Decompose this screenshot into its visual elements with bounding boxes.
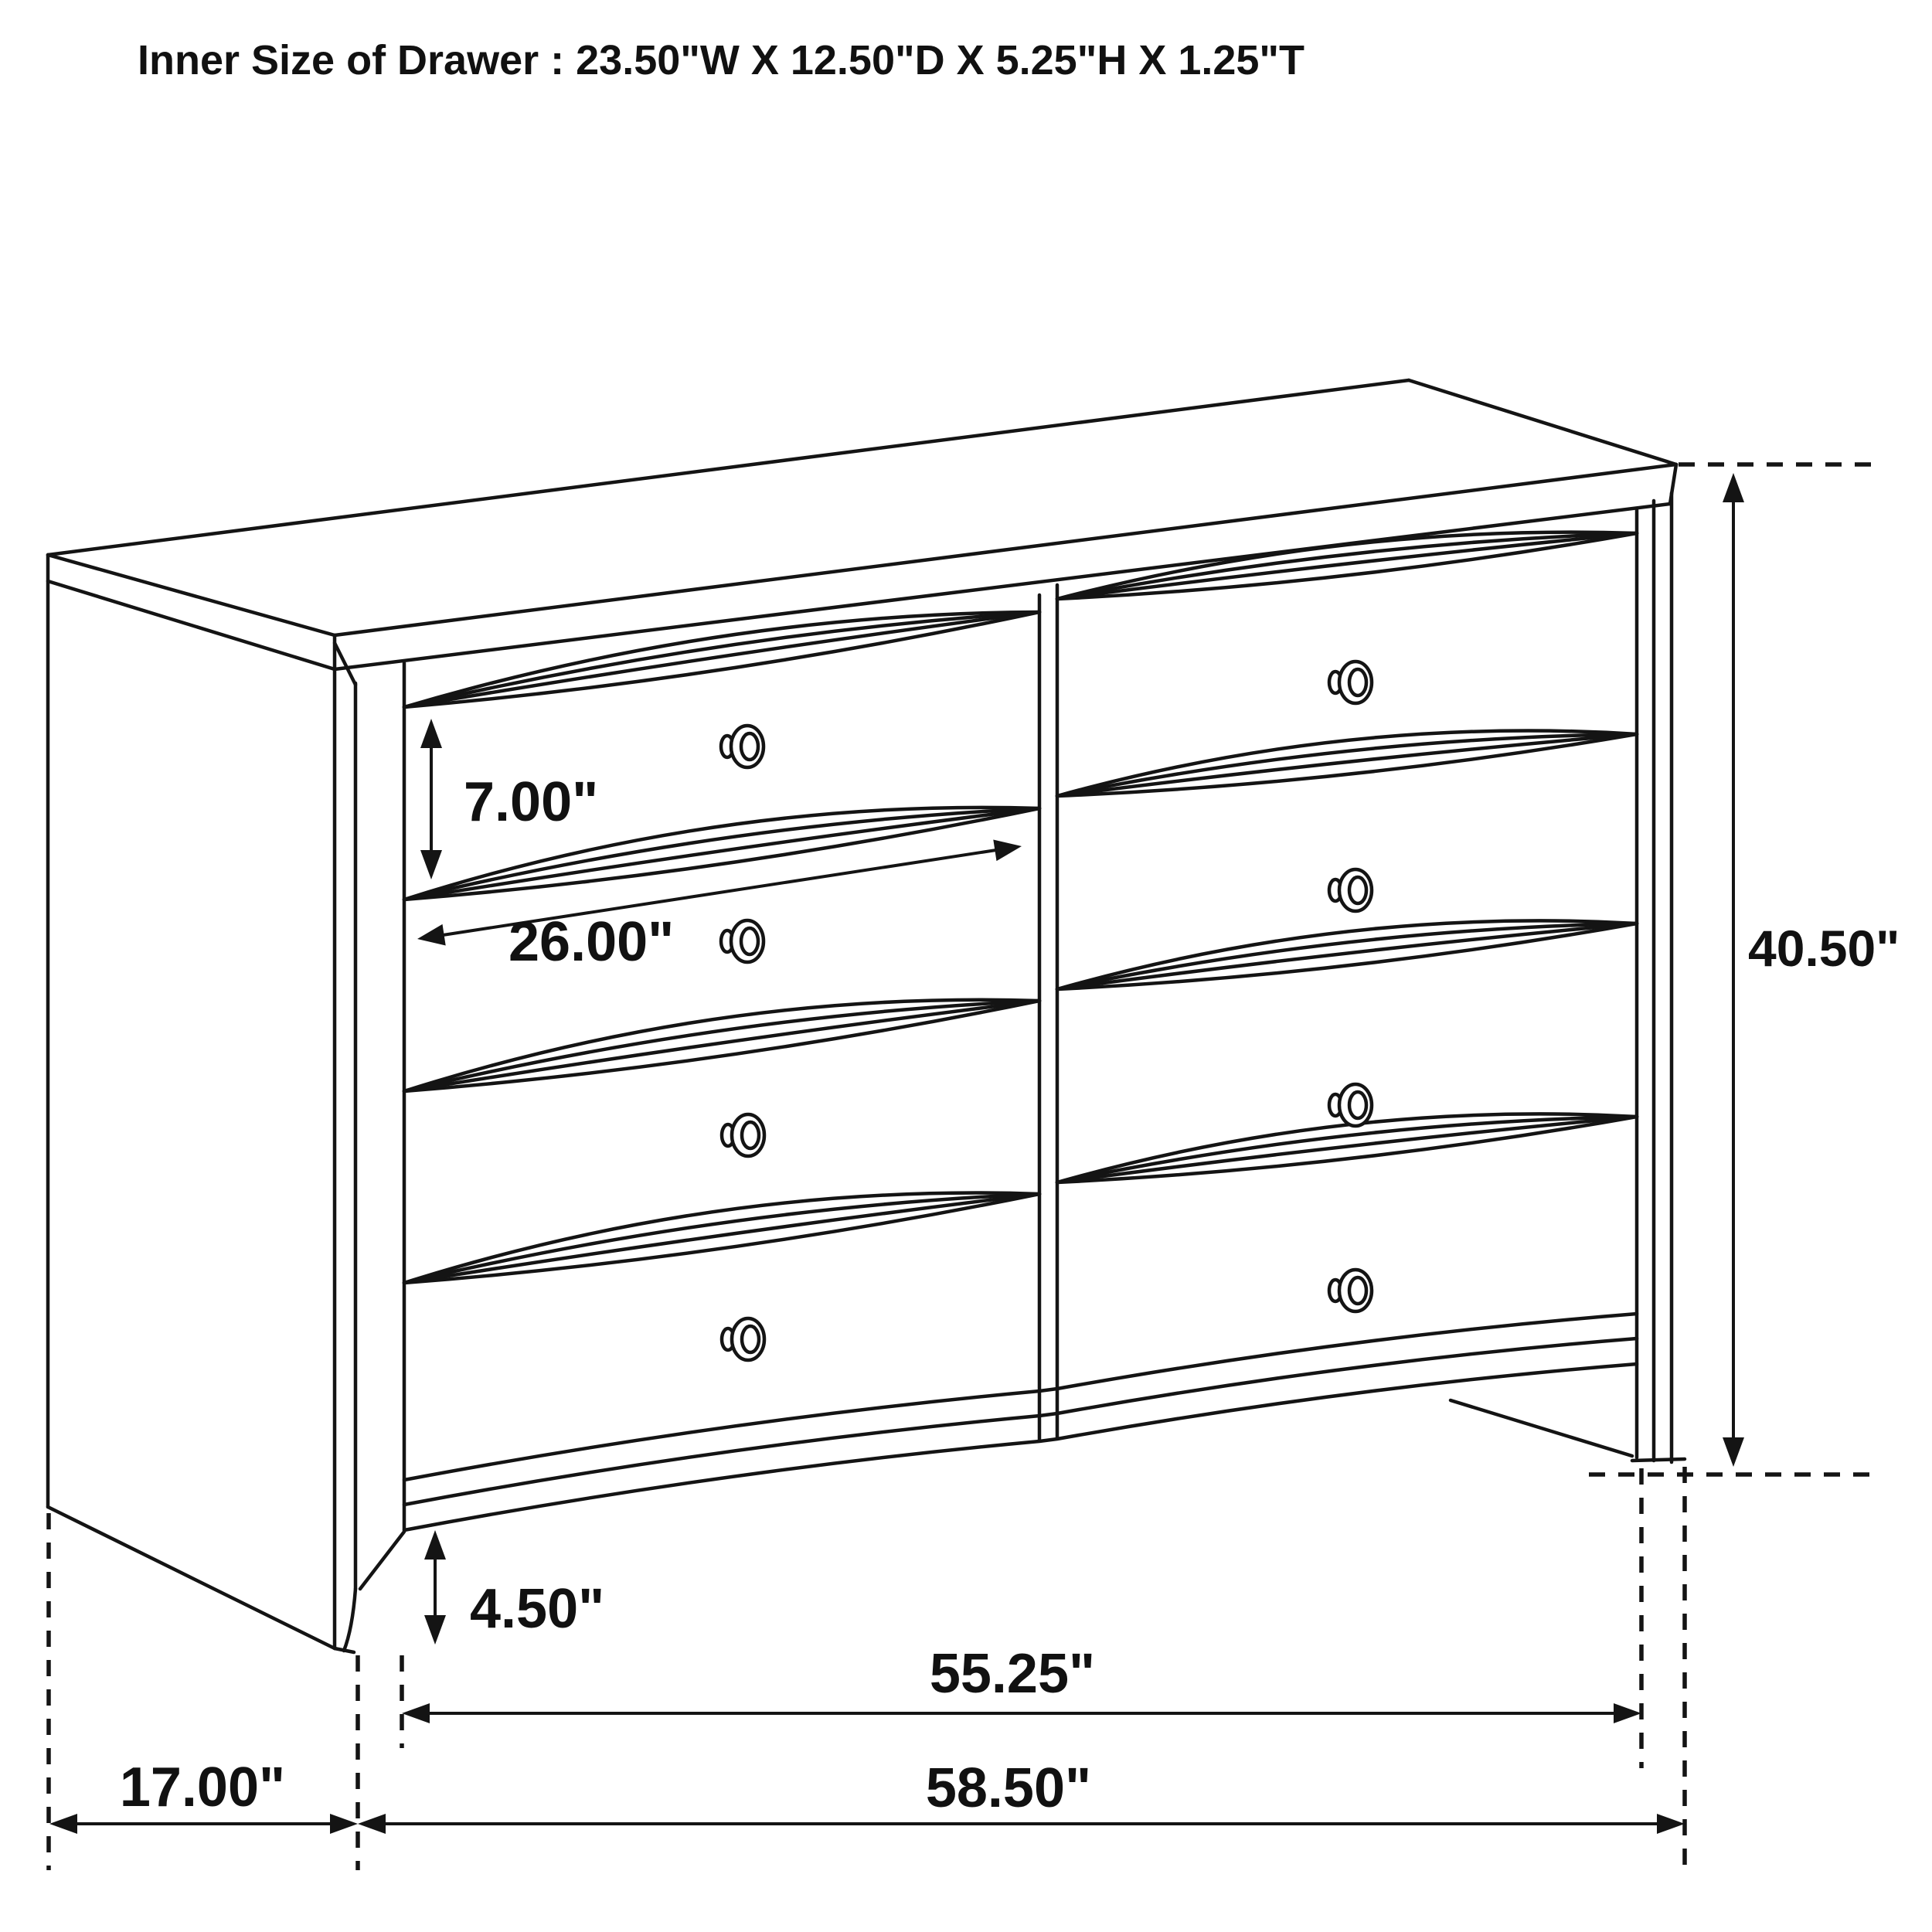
knob-icon	[722, 1114, 764, 1156]
diagram-canvas: Inner Size of Drawer : 23.50"W X 12.50"D…	[0, 0, 1932, 1932]
drawer-knobs	[721, 662, 1372, 1360]
left-foot-curve	[344, 1589, 355, 1651]
bottom-rail	[404, 1314, 1637, 1530]
arrow-up-icon	[424, 1530, 446, 1560]
dimension-label-17in: 17.00"	[120, 1757, 285, 1818]
dresser-dimension-diagram: Inner Size of Drawer : 23.50"W X 12.50"D…	[0, 0, 1932, 1932]
dimension-front-leg-width: 55.25"	[402, 1643, 1641, 1723]
arrow-left-icon	[358, 1814, 386, 1834]
arrow-right-icon	[1614, 1703, 1641, 1723]
arrow-down-icon	[424, 1615, 446, 1645]
arrow-down-icon	[420, 850, 442, 879]
arrow-down-icon	[1723, 1437, 1744, 1467]
dimension-label-55in: 55.25"	[930, 1643, 1095, 1705]
knob-icon	[1329, 662, 1372, 703]
knob-icon	[1329, 869, 1372, 911]
knob-icon	[721, 726, 764, 767]
arrow-right-icon	[993, 840, 1022, 862]
side-bottom-edge	[48, 1507, 335, 1648]
dimension-label-26in: 26.00"	[509, 911, 674, 973]
arrow-left-icon	[402, 1703, 430, 1723]
arrow-left-icon	[417, 924, 446, 946]
dimension-overall-width: 58.50"	[358, 1757, 1685, 1834]
slab-bottom-front-edge	[335, 504, 1670, 669]
dimension-label-40in: 40.50"	[1748, 920, 1900, 977]
left-foot-bracket-diagonal	[360, 1532, 404, 1589]
top-right-edge	[1409, 380, 1676, 464]
left-foot-bottom	[335, 1648, 354, 1652]
dresser-carcass	[48, 380, 1685, 1652]
dimension-label-58in: 58.50"	[926, 1757, 1091, 1819]
front-left-chamfer	[335, 643, 355, 685]
projection-lines	[49, 1467, 1685, 1878]
dimension-drawer-front-width: 26.00"	[417, 840, 1022, 974]
arrow-right-icon	[1657, 1814, 1685, 1834]
right-foot-bracket-diagonal	[1451, 1400, 1632, 1456]
knob-icon	[721, 920, 764, 962]
drawer-row-curves-right	[1057, 532, 1637, 1182]
knob-icon	[722, 1318, 764, 1360]
dimension-label-4-5in: 4.50"	[470, 1578, 604, 1640]
arrow-right-icon	[330, 1814, 358, 1834]
dimension-label-7in: 7.00"	[464, 771, 598, 833]
arrow-left-icon	[49, 1814, 77, 1834]
diagram-title: Inner Size of Drawer : 23.50"W X 12.50"D…	[138, 37, 1304, 83]
drawer-fronts	[404, 532, 1637, 1530]
knob-icon	[1329, 1270, 1372, 1311]
knob-icon	[1329, 1084, 1372, 1126]
arrow-up-icon	[420, 719, 442, 748]
dimension-side-depth: 17.00"	[49, 1757, 358, 1834]
right-foot-bottom	[1632, 1459, 1685, 1461]
arrow-up-icon	[1723, 473, 1744, 502]
dimension-foot-height: 4.50"	[424, 1530, 604, 1645]
top-back-edge	[48, 380, 1409, 555]
